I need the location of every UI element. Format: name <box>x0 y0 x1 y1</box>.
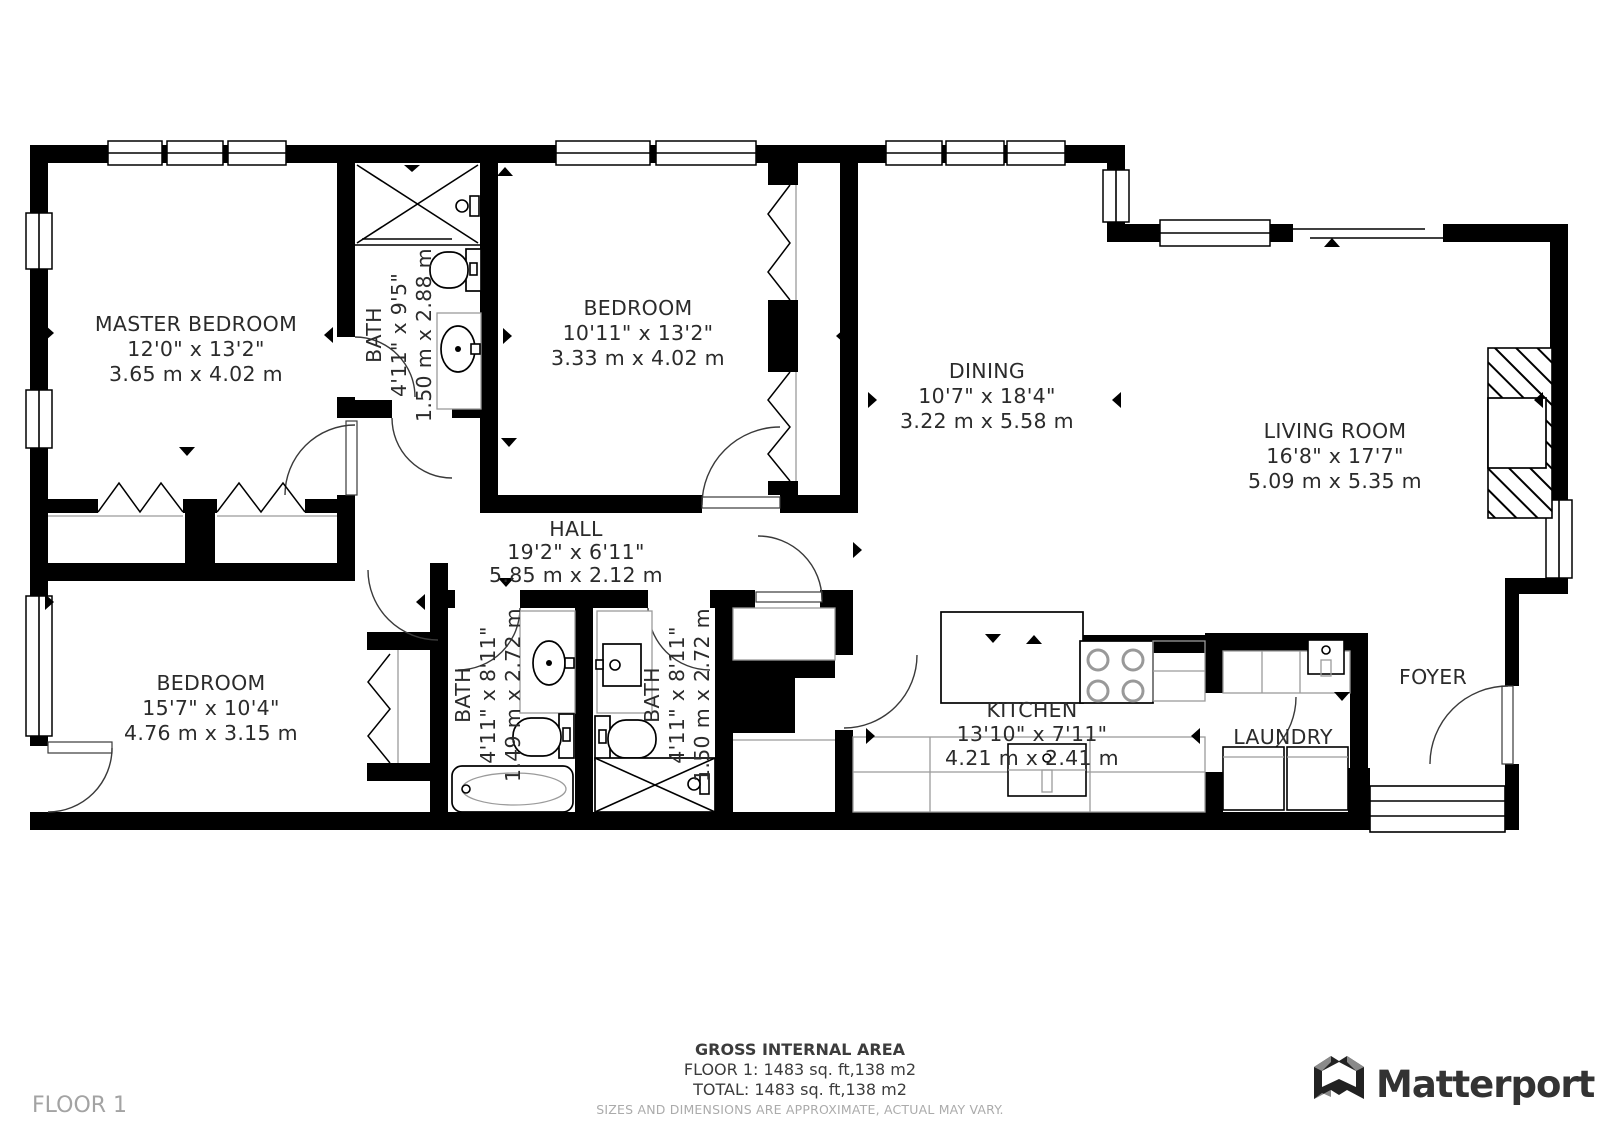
room-metric-dims: 1.49 m x 2.72 m <box>501 608 525 782</box>
room-imperial-dims: 10'7" x 18'4" <box>918 384 1055 408</box>
door <box>1430 686 1513 764</box>
room-imperial-dims: 4'11" x 8'11" <box>665 626 689 763</box>
room-imperial-dims: 4'11" x 8'11" <box>476 626 500 763</box>
foyer-label: FOYER <box>1399 665 1467 689</box>
room-name: KITCHEN <box>987 698 1078 722</box>
room-metric-dims: 4.76 m x 3.15 m <box>124 721 298 745</box>
window <box>228 141 286 165</box>
disclaimer-text: SIZES AND DIMENSIONS ARE APPROXIMATE, AC… <box>596 1102 1003 1117</box>
master-bedroom-label: MASTER BEDROOM 12'0" x 13'2" 3.65 m x 4.… <box>95 312 297 386</box>
bifold-closet-doors <box>768 185 790 300</box>
window <box>886 141 942 165</box>
door <box>285 418 357 495</box>
bedroom-top-label: BEDROOM 10'11" x 13'2" 3.33 m x 4.02 m <box>551 296 725 370</box>
window <box>26 213 52 269</box>
door <box>835 655 917 730</box>
bedroom-bottom-label: BEDROOM 15'7" x 10'4" 4.76 m x 3.15 m <box>124 671 298 745</box>
bifold-closet-doors <box>98 483 183 512</box>
floor-area-line: FLOOR 1: 1483 sq. ft,138 m2 <box>684 1060 916 1079</box>
room-name: HALL <box>549 517 603 541</box>
door <box>368 570 438 640</box>
window <box>1103 170 1129 222</box>
hall-closet <box>733 608 835 660</box>
window <box>556 141 650 165</box>
floor-plan-canvas: MASTER BEDROOM 12'0" x 13'2" 3.65 m x 4.… <box>0 0 1600 1131</box>
total-area-line: TOTAL: 1483 sq. ft,138 m2 <box>692 1080 907 1099</box>
room-metric-dims: 5.09 m x 5.35 m <box>1248 469 1422 493</box>
master-bath-label: BATH 4'11" x 9'5" 1.50 m x 2.88 m <box>362 248 436 422</box>
room-name: BEDROOM <box>583 296 692 320</box>
window <box>1007 141 1065 165</box>
room-name: BEDROOM <box>156 671 265 695</box>
laundry-label: LAUNDRY <box>1233 725 1333 749</box>
room-name: LAUNDRY <box>1233 725 1333 749</box>
bathroom-sink <box>437 313 481 409</box>
window <box>1160 220 1270 246</box>
room-metric-dims: 3.33 m x 4.02 m <box>551 346 725 370</box>
bathroom-sink <box>520 611 575 713</box>
room-imperial-dims: 19'2" x 6'11" <box>507 540 644 564</box>
floor-label: FLOOR 1 <box>32 1093 127 1118</box>
bifold-closet-doors <box>368 654 390 763</box>
footer: GROSS INTERNAL AREA FLOOR 1: 1483 sq. ft… <box>32 1040 1004 1118</box>
room-name: FOYER <box>1399 665 1467 689</box>
sliding-door <box>1293 222 1443 244</box>
porch-steps <box>1370 786 1505 832</box>
door <box>392 418 452 478</box>
washer-dryer <box>1223 747 1348 810</box>
room-name: DINING <box>949 359 1025 383</box>
room-imperial-dims: 15'7" x 10'4" <box>142 696 279 720</box>
matterport-logo-icon <box>1314 1056 1364 1099</box>
hall-label: HALL 19'2" x 6'11" 5.85 m x 2.12 m <box>489 517 663 587</box>
matterport-logo: Matterport <box>1314 1056 1595 1106</box>
room-metric-dims: 5.85 m x 2.12 m <box>489 563 663 587</box>
window <box>26 390 52 448</box>
room-metric-dims: 4.21 m x 2.41 m <box>945 746 1119 770</box>
toilet <box>430 249 481 291</box>
room-imperial-dims: 4'11" x 9'5" <box>387 273 411 397</box>
room-metric-dims: 3.65 m x 4.02 m <box>109 362 283 386</box>
shower <box>355 165 480 245</box>
room-metric-dims: 1.50 m x 2.88 m <box>412 248 436 422</box>
room-name: LIVING ROOM <box>1264 419 1407 443</box>
window <box>26 596 52 736</box>
room-metric-dims: 1.50 m x 2.72 m <box>690 608 714 782</box>
window <box>167 141 223 165</box>
stove <box>1080 641 1153 703</box>
living-room-label: LIVING ROOM 16'8" x 17'7" 5.09 m x 5.35 … <box>1248 419 1422 493</box>
window <box>946 141 1004 165</box>
room-name: BATH <box>451 667 475 723</box>
door <box>30 742 112 812</box>
gross-internal-area-title: GROSS INTERNAL AREA <box>695 1040 906 1059</box>
room-name: MASTER BEDROOM <box>95 312 297 336</box>
window <box>656 141 756 165</box>
room-name: BATH <box>362 307 386 363</box>
door <box>756 536 822 602</box>
floor-plan-page: MASTER BEDROOM 12'0" x 13'2" 3.65 m x 4.… <box>0 0 1600 1131</box>
window <box>108 141 162 165</box>
room-name: BATH <box>640 667 664 723</box>
room-imperial-dims: 10'11" x 13'2" <box>563 321 714 345</box>
fireplace <box>1488 348 1552 518</box>
room-metric-dims: 3.22 m x 5.58 m <box>900 409 1074 433</box>
dining-label: DINING 10'7" x 18'4" 3.22 m x 5.58 m <box>900 359 1074 433</box>
matterport-logo-text: Matterport <box>1376 1063 1595 1106</box>
kitchen-island <box>941 612 1083 703</box>
bath-left-label: BATH 4'11" x 8'11" 1.49 m x 2.72 m <box>451 608 525 782</box>
bifold-closet-doors <box>217 483 305 512</box>
kitchen-label: KITCHEN 13'10" x 7'11" 4.21 m x 2.41 m <box>945 698 1119 770</box>
room-imperial-dims: 13'10" x 7'11" <box>957 722 1108 746</box>
room-imperial-dims: 12'0" x 13'2" <box>127 337 264 361</box>
door <box>702 427 780 508</box>
room-imperial-dims: 16'8" x 17'7" <box>1266 444 1403 468</box>
